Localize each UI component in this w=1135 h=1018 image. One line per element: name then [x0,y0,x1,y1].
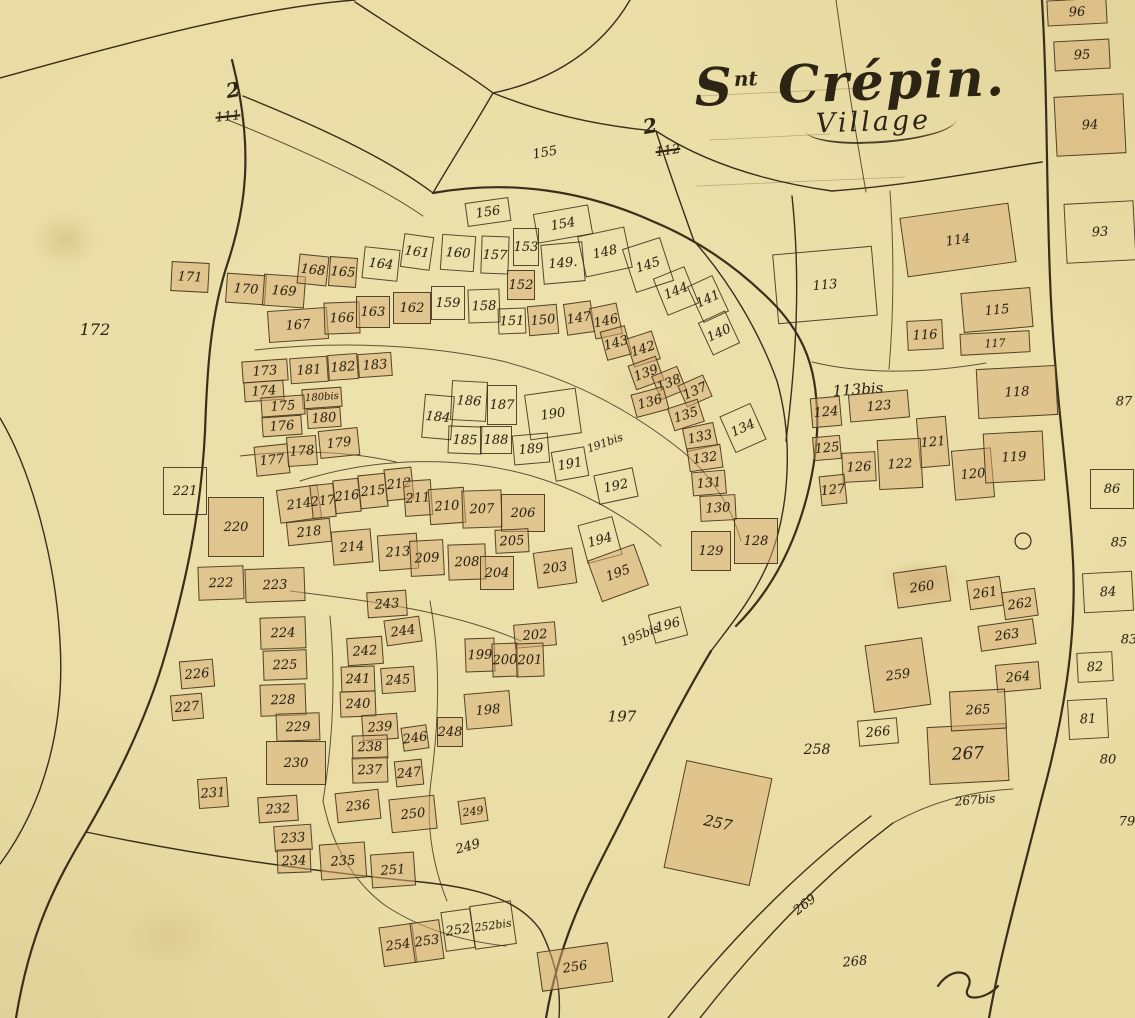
parcel-label: 141 [694,288,722,310]
parcel-label: 203 [542,560,568,576]
parcel-label: 228 [270,693,295,707]
parcel-label: 121 [920,434,946,449]
parcel-layer: 2111155211217217117016916816516416116015… [0,0,1135,1018]
parcel: 134 [719,403,766,453]
parcel-label: 214 [339,539,365,554]
parcel: 232 [257,795,299,824]
parcel-label: 223 [262,578,287,592]
parcel: 150 [527,304,560,337]
parcel-label: 190 [540,406,566,422]
parcel-label: 135 [672,405,700,425]
parcel: 117 [959,330,1030,356]
parcel: 269 [791,892,819,918]
parcel-label: 2 [224,79,241,101]
parcel-label: 207 [469,502,494,516]
parcel: 132 [686,444,723,472]
parcel-label: 96 [1068,5,1085,19]
parcel: 165 [328,256,358,288]
parcel-label: 235 [330,854,356,869]
parcel: 178 [286,435,318,467]
parcel-label: 242 [352,644,378,659]
parcel-label: 213 [385,545,411,560]
parcel: 224 [259,616,306,650]
parcel-label: 156 [475,204,501,220]
parcel-label: 231 [200,786,226,801]
parcel-label: 82 [1086,660,1103,674]
parcel-label: 163 [361,306,386,319]
parcel-label: 140 [705,322,733,344]
parcel-label: 184 [425,409,451,424]
parcel: 115 [960,287,1033,333]
parcel: 93 [1063,200,1135,264]
parcel-label: 220 [224,521,249,534]
parcel-label: 169 [271,284,297,299]
map-title: Snt Crépin. Village [693,46,1026,149]
parcel-label: 161 [404,244,430,260]
parcel: 198 [464,690,513,730]
parcel-label: 257 [702,813,733,834]
parcel: 267bis [954,792,995,807]
parcel: 265 [949,689,1007,732]
parcel: 249 [457,797,488,825]
parcel: 250 [388,795,437,834]
parcel: 81 [1067,698,1109,740]
parcel: 172 [80,322,111,338]
parcel-label: 215 [360,483,386,499]
parcel-label: 115 [984,302,1010,317]
parcel: 95 [1053,39,1110,72]
parcel: 153 [513,228,539,266]
crossed-out-parcel-number: 112 [655,143,681,159]
parcel-label: 153 [514,241,539,254]
parcel-label: 149. [548,255,578,270]
parcel-label: 222 [208,576,233,590]
parcel: 124 [810,396,843,429]
parcel: 114 [899,203,1016,278]
parcel-label: 128 [744,535,769,548]
parcel-label: 145 [634,255,662,275]
parcel-label: 170 [233,282,259,297]
parcel: 237 [352,756,389,783]
parcel: 123 [848,389,910,422]
parcel-label: 180bis [305,392,339,404]
parcel-label: 160 [445,246,471,261]
parcel: 259 [865,637,932,712]
parcel-label: 206 [511,507,536,520]
parcel-label: 259 [885,667,911,683]
parcel-label: 133 [686,428,713,446]
parcel-label: 244 [390,623,416,639]
parcel: 261 [966,576,1004,610]
parcel-label: 175 [270,399,296,414]
parcel-label: 83 [1121,634,1135,647]
parcel-label: 191bis [586,431,625,454]
parcel-label: 2 [641,115,658,137]
parcel-label: 80 [1100,754,1117,767]
parcel-label: 122 [887,457,912,471]
parcel-label: 165 [330,265,356,280]
parcel: 167 [267,307,329,343]
parcel-label: 241 [345,672,370,686]
parcel: 113 [772,246,878,324]
parcel-label: 119 [1001,450,1026,464]
parcel: 162 [393,292,431,324]
parcel: 157 [480,236,509,275]
parcel-label: 117 [984,337,1006,349]
parcel-label: 176 [269,419,295,434]
parcel-label: 229 [285,720,310,734]
parcel-label: 210 [434,499,460,514]
parcel: 196 [648,606,689,644]
parcel-label: 227 [174,699,200,714]
parcel: 79 [1119,816,1135,829]
parcel: 234 [277,848,312,873]
parcel: 218 [286,518,332,546]
parcel-label: 113 [812,277,838,292]
parcel-label: 233 [280,831,306,846]
parcel: 131 [691,470,727,497]
parcel: 128 [734,518,778,564]
parcel: 127 [819,474,848,507]
parcel: 231 [197,777,229,809]
parcel-label: 197 [608,710,637,725]
parcel: 94 [1053,93,1126,157]
crossed-out-parcel-number: 111 [215,109,241,125]
parcel-label: 85 [1111,537,1128,550]
parcel-label: 248 [438,726,463,739]
parcel: 152 [507,270,535,300]
parcel-label: 94 [1081,118,1098,132]
parcel-label: 260 [909,579,935,595]
parcel: 229 [276,712,321,742]
parcel: 161 [400,233,434,271]
parcel: 227 [170,693,204,722]
parcel-label: 189 [518,441,544,456]
parcel-label: 148 [591,243,618,261]
parcel-label: 186 [456,394,481,408]
parcel-label: 224 [270,626,295,640]
parcel-label: 205 [499,534,524,548]
parcel: 156 [465,197,512,227]
parcel: 186 [450,380,488,422]
parcel: 164 [361,246,400,282]
parcel-label: 134 [729,417,757,439]
parcel: 246 [400,724,429,751]
parcel-label: 208 [454,555,479,569]
parcel-label: 211 [405,491,431,506]
parcel-label: 253 [414,933,440,949]
parcel-label: 265 [965,703,990,717]
parcel-label: 252 [445,922,471,938]
parcel: 228 [259,683,306,717]
parcel-label: 251 [380,863,406,878]
parcel-label: 116 [912,328,937,342]
parcel-label: 167 [285,318,311,333]
parcel-label: 112 [655,143,681,159]
parcel: 158 [467,288,500,323]
parcel: 151 [498,308,527,335]
parcel: 245 [380,666,416,694]
parcel-label: 191 [557,455,584,472]
parcel-label: 164 [368,256,394,272]
parcel: 205 [494,528,529,554]
parcel-label: 126 [846,460,871,474]
parcel-label: 245 [385,673,411,688]
parcel: 225 [262,649,307,681]
parcel: 180bis [301,387,342,410]
parcel: 207 [461,489,502,528]
parcel-label: 81 [1079,712,1096,726]
parcel: 80 [1100,754,1117,767]
parcel: 190 [524,388,582,441]
parcel: 236 [335,789,382,823]
parcel-label: 198 [475,702,501,717]
parcel-label: 166 [329,311,354,325]
parcel: 82 [1076,651,1114,683]
parcel-label: 152 [509,279,534,292]
flourish-mark: 2 [224,79,241,101]
parcel: 188 [480,426,512,454]
parcel: 201 [515,643,544,678]
parcel: 258 [804,743,831,757]
parcel: 262 [1001,588,1039,620]
parcel: 119 [983,430,1046,483]
flourish-mark: 2 [641,115,658,137]
parcel-label: 217 [310,493,336,509]
parcel: 163 [356,296,390,328]
parcel-label: 114 [945,232,971,248]
parcel-label: 236 [345,798,371,814]
parcel-label: 155 [532,144,559,161]
parcel: 187 [487,385,517,425]
parcel-label: 111 [215,109,241,125]
parcel-label: 183 [362,358,388,373]
parcel: 249 [454,838,481,857]
parcel-label: 194 [586,531,613,550]
parcel-label: 93 [1091,225,1108,239]
parcel-label: 192 [602,477,629,495]
parcel-label: 188 [484,434,509,447]
parcel-label: 249 [454,838,481,857]
parcel: 251 [370,852,416,889]
parcel-label: 237 [357,763,382,777]
parcel: 191 [551,446,590,481]
parcel: 155 [532,144,559,161]
parcel-label: 247 [396,765,422,781]
parcel-label: 177 [259,452,285,468]
parcel: 126 [841,451,877,483]
parcel-label: 180 [311,411,337,426]
map-subtitle: Village [805,104,957,146]
title-superscript: nt [733,66,758,91]
parcel-label: 123 [866,398,892,413]
parcel: 214 [331,528,374,565]
parcel-label: 269 [791,892,819,918]
parcel: 260 [893,565,951,608]
parcel-label: 173 [252,364,278,379]
parcel-label: 120 [960,466,986,481]
parcel-label: 195 [604,563,632,584]
parcel: 220 [208,497,264,557]
parcel: 223 [244,567,305,603]
parcel-label: 130 [705,501,730,515]
parcel-label: 196 [654,616,681,635]
parcel-label: 181 [296,363,322,378]
parcel: 203 [533,547,578,588]
parcel: 241 [341,665,376,692]
parcel-label: 144 [662,280,690,301]
parcel: 136 [630,386,669,418]
parcel: 242 [346,636,384,666]
cadastral-map: 2111155211217217117016916816516416116015… [0,0,1135,1018]
parcel-label: 172 [80,322,111,338]
parcel-label: 225 [272,658,297,672]
parcel-label: 118 [1004,385,1029,399]
parcel-label: 263 [994,627,1020,643]
parcel: 197 [608,710,637,725]
parcel-label: 182 [330,360,356,375]
parcel-label: 127 [820,482,846,498]
parcel: 176 [261,415,302,438]
parcel: 171 [170,261,210,293]
parcel: 130 [699,494,736,522]
parcel-label: 84 [1099,585,1116,599]
parcel: 180 [306,407,341,429]
parcel-label: 79 [1119,816,1135,829]
parcel-label: 171 [177,270,202,284]
parcel-label: 234 [281,854,306,868]
parcel: 221 [163,467,207,515]
parcel-label: 238 [357,740,382,754]
parcel-label: 201 [517,653,542,667]
parcel: 96 [1046,0,1107,27]
parcel-label: 252bis [474,917,512,933]
parcel: 235 [319,841,367,880]
parcel: 256 [537,942,614,992]
parcel: 189 [512,432,550,465]
parcel: 222 [197,565,244,601]
parcel-label: 261 [972,585,998,601]
parcel: 248 [437,717,463,747]
parcel-label: 95 [1073,48,1090,62]
parcel: 230 [266,741,326,785]
parcel: 226 [179,659,215,690]
parcel-label: 151 [499,314,524,328]
parcel: 204 [480,556,514,590]
parcel-label: 226 [184,666,210,681]
parcel: 86 [1090,469,1134,509]
parcel: 247 [394,759,425,788]
parcel-label: 131 [696,475,722,490]
parcel-label: 267 [951,745,984,764]
parcel-label: 150 [530,312,556,327]
parcel-label: 147 [566,310,592,326]
parcel: 253 [409,919,444,963]
parcel-label: 187 [490,399,515,412]
parcel: 83 [1121,634,1135,647]
parcel-label: 249 [462,804,484,818]
parcel-label: 202 [522,627,548,642]
parcel-label: 258 [804,743,831,757]
parcel: 84 [1082,571,1134,614]
parcel: 200 [491,643,518,678]
parcel-label: 209 [414,551,439,565]
parcel: 170 [225,273,267,306]
parcel-label: 154 [550,215,577,232]
parcel: 183 [357,352,393,378]
parcel-label: 86 [1104,483,1121,496]
parcel-label: 159 [436,297,461,310]
parcel-label: 246 [402,730,428,746]
parcel-label: 267bis [954,792,995,807]
parcel: 244 [383,616,422,647]
parcel-label: 218 [296,524,322,540]
parcel-label: 178 [289,444,315,459]
parcel: 185 [448,425,483,454]
parcel-label: 200 [492,653,517,667]
parcel-label: 268 [842,954,868,969]
parcel: 206 [501,494,545,532]
parcel: 85 [1111,537,1128,550]
parcel-label: 124 [813,404,839,419]
parcel-label: 266 [865,724,891,739]
parcel: 159 [431,286,465,320]
parcel: 116 [906,319,944,351]
parcel-label: 256 [562,959,588,975]
parcel: 160 [440,234,476,272]
parcel: 240 [340,690,377,717]
parcel: 125 [812,435,842,461]
parcel-label: 214 [286,496,312,512]
parcel: 168 [297,254,330,287]
parcel: 87 [1116,396,1133,409]
parcel: 266 [857,717,899,746]
parcel-label: 216 [334,488,360,504]
parcel: 166 [323,301,360,334]
parcel-label: 254 [385,937,411,953]
parcel-label: 239 [367,720,393,735]
parcel: 122 [877,438,924,490]
parcel-label: 232 [265,802,291,817]
parcel-label: 87 [1116,396,1133,409]
parcel: 118 [976,365,1059,419]
parcel: 192 [593,467,638,505]
parcel: 129 [691,531,731,571]
parcel: 209 [409,539,445,577]
parcel-label: 162 [400,302,425,315]
parcel-label: 240 [345,697,370,711]
parcel-label: 129 [699,545,724,558]
parcel: 267 [927,723,1010,785]
parcel: 182 [327,353,359,381]
parcel: 243 [366,590,408,619]
title-prefix: S [693,56,735,118]
parcel-label: 264 [1005,669,1031,684]
parcel: 268 [842,954,868,969]
parcel: 181 [289,356,329,385]
parcel-label: 199 [467,648,492,662]
parcel-label: 262 [1007,596,1033,612]
parcel-label: 157 [482,248,507,262]
parcel-label: 204 [485,567,510,580]
parcel: 179 [318,427,361,459]
parcel-label: 168 [300,262,326,278]
parcel-label: 250 [400,806,426,822]
parcel: 177 [254,443,291,476]
parcel-label: 158 [471,299,496,313]
parcel: 263 [977,618,1036,652]
parcel-label: 136 [636,393,663,412]
